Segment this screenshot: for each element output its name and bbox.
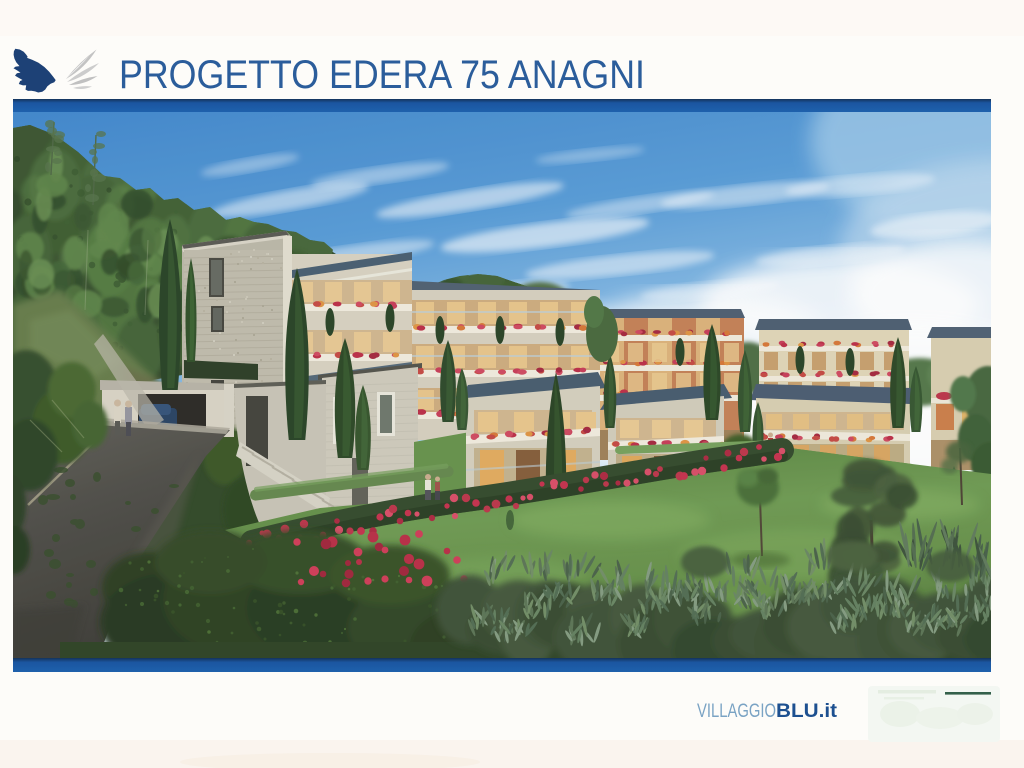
- svg-text:PROGETTO EDERA 75 ANAGNI: PROGETTO EDERA 75 ANAGNI: [119, 53, 645, 97]
- svg-text:VILLAGGIO: VILLAGGIO: [697, 701, 776, 722]
- svg-text:BLU.it: BLU.it: [776, 701, 838, 722]
